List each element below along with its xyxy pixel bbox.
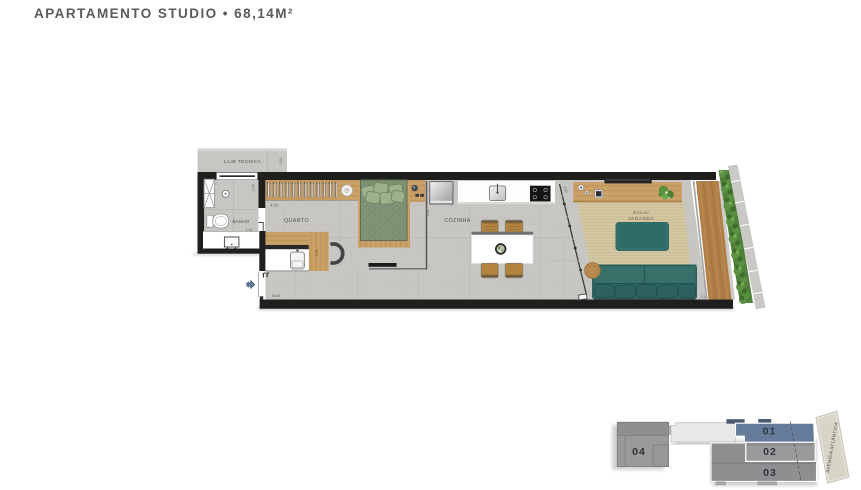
- svg-text:8.54: 8.54: [272, 293, 281, 298]
- svg-text:01: 01: [763, 426, 777, 438]
- svg-text:COZINHA: COZINHA: [444, 218, 470, 224]
- svg-text:2.78: 2.78: [252, 185, 256, 192]
- svg-text:4.15: 4.15: [270, 203, 279, 208]
- svg-text:3.00: 3.00: [315, 250, 319, 257]
- svg-text:3.02: 3.02: [426, 210, 430, 217]
- svg-text:QUARTO: QUARTO: [284, 218, 309, 224]
- svg-text:BANHO: BANHO: [232, 219, 249, 224]
- svg-text:03: 03: [763, 467, 777, 479]
- svg-text:VARANDA: VARANDA: [628, 216, 655, 222]
- svg-text:02: 02: [763, 446, 777, 458]
- svg-text:LAJE TECNICA: LAJE TECNICA: [224, 159, 262, 164]
- svg-text:0.62: 0.62: [279, 158, 283, 165]
- svg-text:SALA/: SALA/: [633, 210, 649, 216]
- svg-text:04: 04: [632, 446, 646, 458]
